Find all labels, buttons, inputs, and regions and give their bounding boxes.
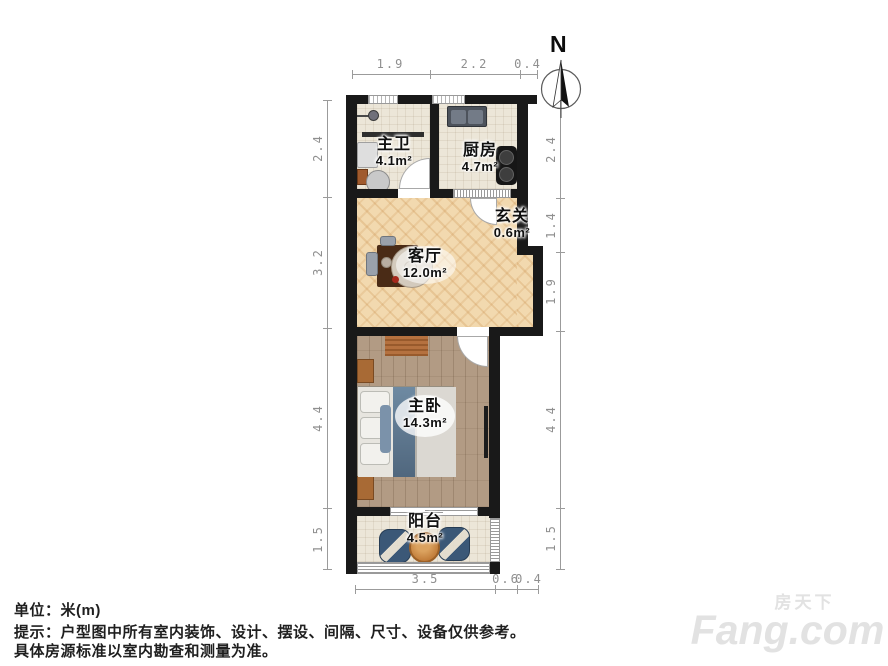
dim-line-bottom: [355, 589, 538, 590]
tick: [517, 585, 518, 594]
dim-line-left: [327, 100, 328, 570]
dim-top-2: 2.2: [452, 57, 497, 71]
bedroom-name: 主卧: [390, 398, 460, 415]
bathroom-area: 4.1m²: [359, 153, 429, 168]
shower-head-icon: [368, 110, 379, 121]
wall: [533, 246, 543, 336]
room-label-kitchen: 厨房 4.7m²: [445, 142, 515, 174]
tick: [323, 508, 332, 509]
nightstand-icon: [357, 359, 374, 383]
tick: [495, 585, 496, 594]
room-label-living: 客厅 12.0m²: [390, 248, 460, 280]
tick: [430, 70, 431, 79]
dim-right-3: 1.9: [544, 271, 558, 311]
fang-watermark-logo: Fang.com: [690, 608, 885, 652]
room-label-bedroom: 主卧 14.3m²: [390, 398, 460, 430]
sink-basin: [468, 110, 483, 124]
tick: [538, 585, 539, 594]
pillow-zone: [358, 387, 393, 477]
hallway-name: 玄关: [477, 208, 547, 225]
dim-line-top: [352, 74, 538, 75]
dining-chair-icon: [380, 236, 396, 246]
bathroom-name: 主卫: [359, 136, 429, 153]
dim-bottom-3: 0.4: [514, 572, 544, 586]
room-label-balcony: 阳台 4.5m²: [390, 513, 460, 545]
wall: [430, 95, 439, 198]
tick: [520, 70, 521, 79]
dim-left-4: 1.5: [311, 519, 325, 559]
disclaimer-line-2: 具体房源标准以室内勘查和测量为准。: [14, 640, 278, 661]
sink-basin: [451, 110, 466, 124]
tick: [323, 569, 332, 570]
balcony-name: 阳台: [390, 513, 460, 530]
kitchen-area: 4.7m²: [445, 159, 515, 174]
dim-right-4: 4.4: [544, 399, 558, 439]
dim-top-1: 1.9: [368, 57, 413, 71]
wall: [511, 189, 528, 198]
wall: [346, 189, 398, 198]
dim-right-5: 1.5: [544, 518, 558, 558]
tick: [556, 198, 565, 199]
dim-right-1: 2.4: [544, 129, 558, 169]
wall: [478, 507, 489, 516]
tick: [323, 328, 332, 329]
fang-watermark: 房天下 Fang.com: [690, 594, 885, 652]
dim-bottom-1: 3.5: [403, 572, 448, 586]
wall: [489, 562, 500, 574]
room-label-bathroom: 主卫 4.1m²: [359, 136, 429, 168]
balcony-area: 4.5m²: [390, 530, 460, 545]
living-room-floor-extension: [517, 255, 533, 327]
dining-chair-icon: [366, 252, 378, 276]
dim-left-2: 3.2: [311, 242, 325, 282]
dim-left-1: 2.4: [311, 128, 325, 168]
balcony-side-window: [490, 518, 500, 562]
hallway-area: 0.6m²: [477, 225, 547, 240]
balcony-railing-window: [357, 562, 490, 574]
tick: [323, 100, 332, 101]
room-label-hallway: 玄关 0.6m²: [477, 208, 547, 240]
dresser-icon: [385, 336, 428, 356]
sliding-door-track: [425, 510, 477, 511]
tick: [355, 585, 356, 594]
wall: [346, 507, 390, 516]
wall: [439, 189, 453, 198]
dim-left-3: 4.4: [311, 398, 325, 438]
kitchen-pass-window: [453, 189, 511, 198]
dim-line-right: [560, 100, 561, 570]
unit-note: 单位：米(m): [14, 599, 101, 620]
wall: [489, 327, 500, 518]
disclaimer-line-1: 提示：户型图中所有室内装饰、设计、摆设、间隔、尺寸、设备仅供参考。: [14, 621, 526, 642]
kitchen-window: [432, 95, 465, 104]
nightstand-icon: [357, 474, 374, 500]
living-name: 客厅: [390, 248, 460, 265]
tv-icon: [484, 406, 488, 458]
bathroom-window: [368, 95, 398, 104]
wall: [398, 95, 432, 104]
tick: [556, 508, 565, 509]
compass-n-label: N: [550, 31, 567, 58]
tick: [556, 252, 565, 253]
living-area: 12.0m²: [390, 265, 460, 280]
floorplan-page: { "plan": { "rooms": [ {"name": "主卫", "a…: [0, 0, 888, 666]
tick: [556, 569, 565, 570]
tick: [556, 331, 565, 332]
tick: [352, 70, 353, 79]
bedroom-area: 14.3m²: [390, 415, 460, 430]
kitchen-name: 厨房: [445, 142, 515, 159]
tick: [323, 197, 332, 198]
wall: [346, 327, 457, 336]
kitchen-sink-icon: [447, 106, 487, 127]
